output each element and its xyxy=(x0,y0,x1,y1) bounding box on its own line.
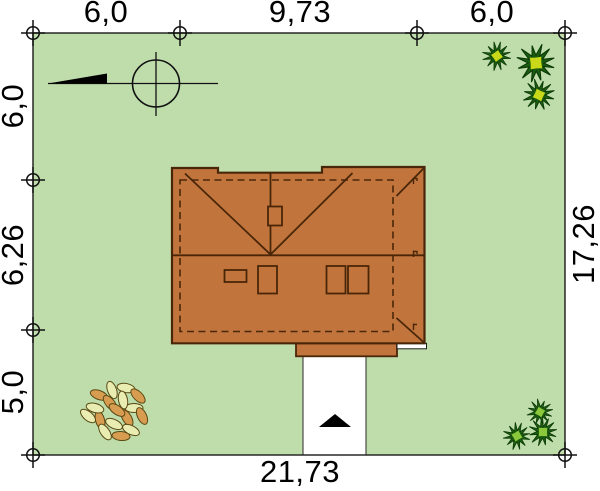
site-plan-drawing xyxy=(0,0,600,491)
dimension-label-bottom: 21,73 xyxy=(255,458,345,486)
dimension-label-left-middle: 6,26 xyxy=(0,210,27,300)
house-extension xyxy=(296,343,397,356)
chimney xyxy=(268,207,282,226)
dimension-label-top-middle: 9,73 xyxy=(255,0,345,26)
roof-window xyxy=(225,270,247,282)
dimension-label-left-lower: 5,0 xyxy=(0,347,27,437)
driveway xyxy=(303,356,366,455)
dimension-label-top-right: 6,0 xyxy=(447,0,537,26)
roof-window xyxy=(258,266,277,294)
roof-window xyxy=(348,266,369,294)
roof-window xyxy=(327,266,346,294)
dimension-label-left-upper: 6,0 xyxy=(0,61,27,151)
site-plan: 6,0 9,73 6,0 21,73 6,0 6,26 5,0 17,26 xyxy=(0,0,600,491)
house-roof xyxy=(172,167,427,356)
dimension-label-right-side: 17,26 xyxy=(570,199,598,289)
dimension-label-top-left: 6,0 xyxy=(61,0,151,26)
